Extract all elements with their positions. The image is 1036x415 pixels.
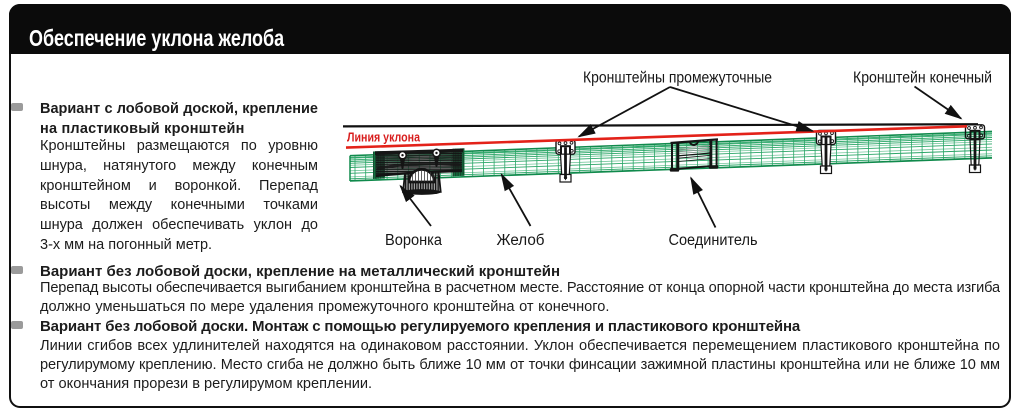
svg-text:Желоб: Желоб [497,232,545,249]
svg-text:Соединитель: Соединитель [669,232,758,249]
svg-text:Воронка: Воронка [385,232,442,249]
svg-text:Линия уклона: Линия уклона [347,130,421,145]
svg-text:Кронштейн конечный: Кронштейн конечный [853,70,992,87]
svg-text:Кронштейны промежуточные: Кронштейны промежуточные [583,70,772,87]
